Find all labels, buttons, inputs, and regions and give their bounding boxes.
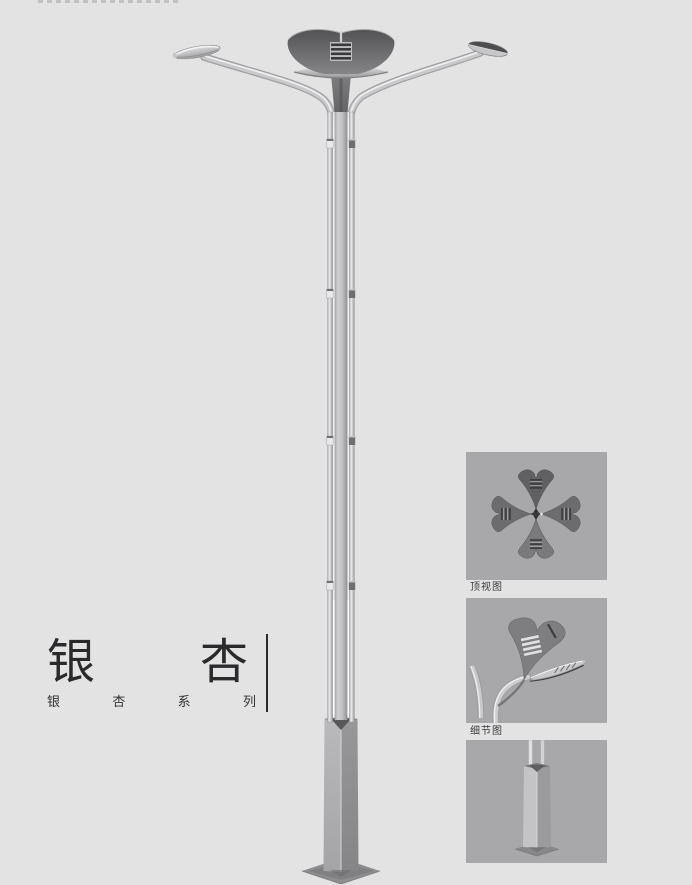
base-view-figure (466, 740, 607, 863)
detail-box-top-view (466, 452, 607, 580)
series-char: 列 (243, 691, 256, 710)
series-char: 系 (178, 691, 191, 710)
base-view-rails (529, 740, 545, 766)
title-divider-line (266, 634, 268, 712)
title-char-right: 杏 (200, 637, 248, 687)
catalog-page: 顶视图 (0, 0, 692, 885)
ginkgo-cross (492, 470, 580, 558)
caption-detail-view: 细节图 (470, 725, 503, 739)
detail-lamp-head (528, 659, 588, 683)
base-column (324, 716, 359, 877)
base-view-column (523, 763, 551, 852)
top-view-figure (466, 452, 607, 580)
detail-ginkgo-leaf (495, 614, 567, 716)
detail-box-detail-view (466, 598, 607, 723)
pole (327, 112, 355, 722)
detail-left-tube (471, 666, 481, 718)
detail-box-base-view (466, 740, 607, 863)
series-label: 银 杏 系 列 (47, 691, 256, 710)
detail-view-figure (466, 598, 607, 723)
page-title: 银 杏 (47, 637, 248, 687)
title-char-left: 银 (47, 637, 95, 687)
series-char: 银 (47, 691, 60, 710)
series-char: 杏 (112, 691, 125, 710)
ginkgo-crown (288, 29, 395, 118)
caption-top-view: 顶视图 (470, 581, 503, 595)
